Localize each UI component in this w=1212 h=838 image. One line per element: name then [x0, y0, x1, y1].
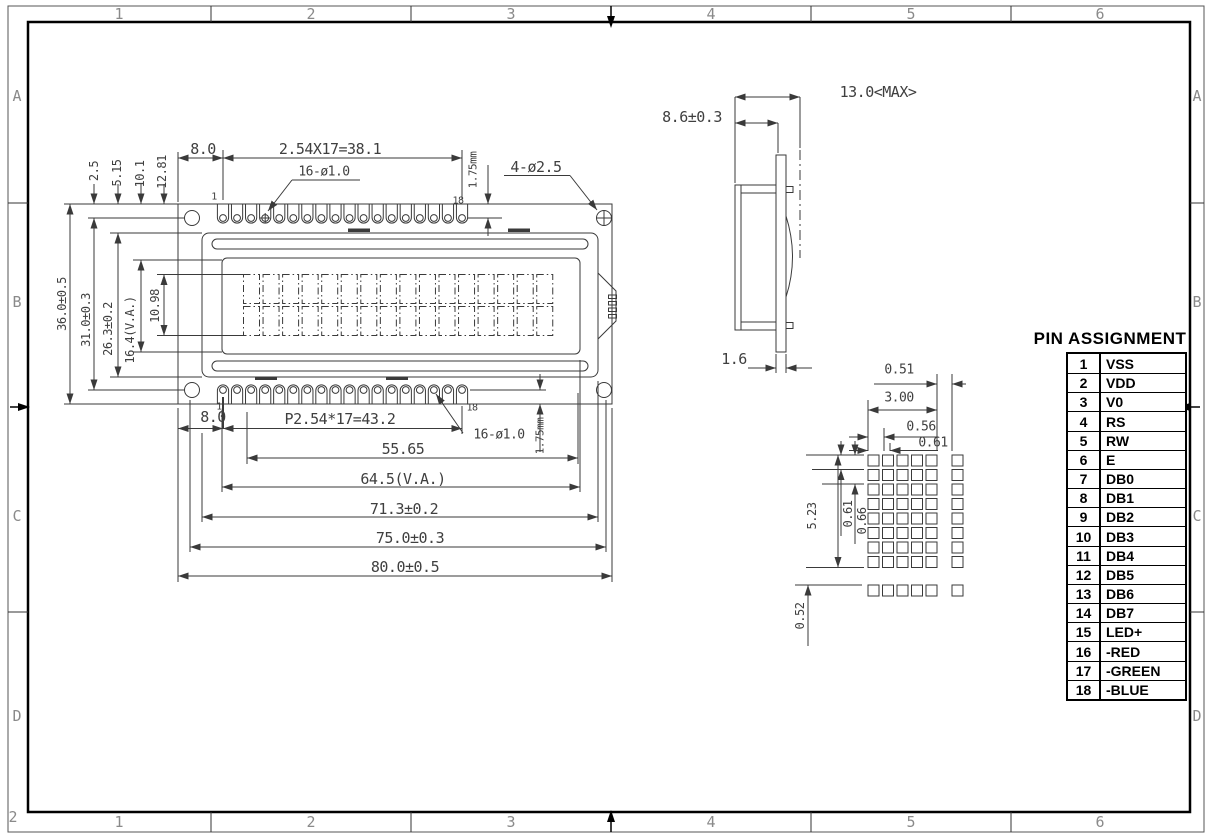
- pin-name: DB0: [1101, 471, 1185, 487]
- pin-hole: [416, 387, 423, 394]
- dot: [926, 542, 937, 553]
- dot: [868, 513, 879, 524]
- dot: [912, 557, 923, 568]
- pin-name: DB5: [1101, 567, 1185, 583]
- dot: [883, 470, 894, 481]
- pin-table-row: 16-RED: [1068, 641, 1185, 660]
- dot: [868, 585, 879, 596]
- pin-name: -GREEN: [1101, 663, 1185, 679]
- dot: [926, 455, 937, 466]
- dot: [897, 513, 908, 524]
- pin-hole: [248, 215, 255, 222]
- pin-name: V0: [1101, 394, 1185, 410]
- zone-row-b-left: B: [12, 293, 21, 311]
- zone-row-b-right: B: [1192, 293, 1201, 311]
- pin-1-label-bottom: 1: [216, 402, 222, 413]
- pin: [456, 205, 467, 224]
- dim-pin-tail-top: 1.75mm: [467, 152, 480, 189]
- dot: [952, 542, 963, 553]
- dim-width-80-0: 80.0±0.5: [371, 558, 439, 576]
- zone-col-5-top: 5: [906, 5, 915, 23]
- pin: [386, 205, 397, 224]
- pin-number: 18: [1068, 681, 1101, 699]
- zone-col-6-top: 6: [1095, 5, 1104, 23]
- pin-table-row: 9DB2: [1068, 507, 1185, 526]
- character-cell: [537, 307, 553, 336]
- pin-1-label-top: 1: [211, 192, 217, 203]
- dim-dot-col-gap: 0.51: [884, 363, 913, 378]
- zone-col-2-bottom: 2: [306, 813, 315, 831]
- character-cells: [244, 275, 553, 336]
- dim-pin-hole-top: 16-ø1.0: [298, 165, 349, 180]
- zone-col-4-bottom: 4: [706, 813, 715, 831]
- dot-matrix-detail: [795, 374, 966, 646]
- character-cell: [341, 307, 357, 336]
- dot: [912, 528, 923, 539]
- pin: [274, 205, 285, 224]
- pin-number: 14: [1068, 604, 1101, 622]
- pin-number: 13: [1068, 585, 1101, 603]
- pin: [316, 205, 327, 224]
- pin-hole: [304, 215, 311, 222]
- pin-table-row: 12DB5: [1068, 565, 1185, 584]
- dot: [912, 499, 923, 510]
- character-cell: [302, 307, 318, 336]
- pin-number: 4: [1068, 412, 1101, 430]
- dot: [926, 470, 937, 481]
- character-cell: [459, 307, 475, 336]
- pin-hole: [374, 215, 381, 222]
- pin-hole: [431, 387, 438, 394]
- dot: [926, 484, 937, 495]
- character-cell: [419, 307, 435, 336]
- dot: [897, 528, 908, 539]
- dot: [883, 513, 894, 524]
- character-cell: [517, 307, 533, 336]
- pin: [330, 385, 341, 404]
- pin-hole: [388, 215, 395, 222]
- dot: [926, 585, 937, 596]
- bezel-tabs: [255, 229, 530, 381]
- pin-number: 10: [1068, 527, 1101, 545]
- pin-hole: [346, 215, 353, 222]
- pin-table-row: 1VSS: [1068, 354, 1185, 373]
- pin: [442, 205, 453, 224]
- character-cell: [263, 307, 279, 336]
- pin: [302, 205, 313, 224]
- dim-pin-tail-bottom: 1.75mm: [534, 418, 547, 455]
- pin-name: -BLUE: [1101, 682, 1185, 698]
- dim-dot-w2: 0.61: [918, 436, 947, 451]
- dot: [897, 499, 908, 510]
- pin: [316, 385, 327, 404]
- pin-name: RS: [1101, 414, 1185, 430]
- dot: [868, 499, 879, 510]
- pin-name: DB6: [1101, 586, 1185, 602]
- pin-hole: [431, 215, 438, 222]
- pin-table-row: 14DB7: [1068, 603, 1185, 622]
- dot: [883, 542, 894, 553]
- pin: [414, 385, 425, 404]
- pin-table-row: 5RW: [1068, 431, 1185, 450]
- pin: [400, 205, 411, 224]
- pin-hole: [248, 387, 255, 394]
- character-cell: [439, 275, 455, 304]
- pin-name: DB4: [1101, 548, 1185, 564]
- dot-grid: [868, 455, 963, 596]
- pin: [246, 385, 257, 404]
- zone-col-4-top: 4: [706, 5, 715, 23]
- dot: [868, 484, 879, 495]
- pin-18-label-top: 18: [452, 196, 463, 207]
- pin: [372, 385, 383, 404]
- dot: [897, 557, 908, 568]
- character-cell: [478, 307, 494, 336]
- corner-mark: 2: [8, 808, 17, 826]
- character-cell: [322, 307, 338, 336]
- pin-hole: [360, 387, 367, 394]
- pin: [414, 205, 425, 224]
- zone-col-1-bottom: 1: [114, 813, 123, 831]
- dot: [912, 455, 923, 466]
- dim-edge-offset-top: 8.0: [190, 140, 216, 158]
- dot: [897, 470, 908, 481]
- dim-dot-w1: 0.56: [906, 420, 935, 435]
- pin: [386, 385, 397, 404]
- character-cell: [244, 307, 260, 336]
- dot: [897, 484, 908, 495]
- pin: [442, 385, 453, 404]
- dim-pin-hole-bottom: 16-ø1.0: [473, 428, 524, 443]
- character-cell: [517, 275, 533, 304]
- pin-table-row: 10DB3: [1068, 526, 1185, 545]
- character-cell: [283, 307, 299, 336]
- zone-col-6-bottom: 6: [1095, 813, 1104, 831]
- pin-hole: [402, 387, 409, 394]
- pin-assignment-table: 1VSS2VDD3V04RS5RW6E7DB08DB19DB210DB311DB…: [1066, 352, 1187, 701]
- character-cell: [302, 275, 318, 304]
- pin: [231, 205, 242, 224]
- dot: [883, 585, 894, 596]
- character-cell: [498, 307, 514, 336]
- pin-name: VDD: [1101, 375, 1185, 391]
- zone-row-d-left: D: [12, 707, 21, 725]
- dot: [912, 585, 923, 596]
- character-cell: [419, 275, 435, 304]
- pin-number: 9: [1068, 508, 1101, 526]
- dot: [897, 585, 908, 596]
- dim-pin-pitch-bottom: P2.54*17=43.2: [285, 410, 396, 428]
- dot: [952, 455, 963, 466]
- pin-name: DB7: [1101, 605, 1185, 621]
- dot: [868, 542, 879, 553]
- pin-name: LED+: [1101, 624, 1185, 640]
- dim-char-height: 5.23: [805, 503, 819, 530]
- pin-hole: [388, 387, 395, 394]
- pin-hole: [402, 215, 409, 222]
- dot: [897, 455, 908, 466]
- pin-number: 17: [1068, 662, 1101, 680]
- pin-row-top: [217, 205, 467, 224]
- dim-width-75-0: 75.0±0.3: [376, 529, 444, 547]
- dim-dot-h2: 0.66: [855, 508, 869, 535]
- pin-hole: [304, 387, 311, 394]
- pin-table-row: 17-GREEN: [1068, 661, 1185, 680]
- dot: [912, 484, 923, 495]
- dim-char-width: 3.00: [884, 391, 913, 406]
- dot: [952, 484, 963, 495]
- character-cell: [380, 307, 396, 336]
- pin-hole: [318, 215, 325, 222]
- dim-height-10-1: 10.1: [133, 161, 147, 188]
- pin: [428, 205, 439, 224]
- dot: [883, 484, 894, 495]
- dot: [926, 499, 937, 510]
- pin-hole: [262, 387, 269, 394]
- dot: [883, 455, 894, 466]
- character-cell: [478, 275, 494, 304]
- pin-table-row: 13DB6: [1068, 584, 1185, 603]
- pin-name: VSS: [1101, 356, 1185, 372]
- character-cell: [283, 275, 299, 304]
- pin-table-row: 8DB1: [1068, 488, 1185, 507]
- pin-number: 3: [1068, 393, 1101, 411]
- character-cell: [361, 307, 377, 336]
- pin-table-row: 11DB4: [1068, 546, 1185, 565]
- pin-number: 8: [1068, 489, 1101, 507]
- pin-table-title: PIN ASSIGNMENT: [1034, 329, 1187, 349]
- character-cell: [400, 275, 416, 304]
- dim-height-2-5: 2.5: [87, 161, 101, 181]
- dot: [883, 557, 894, 568]
- pin: [428, 385, 439, 404]
- pin-number: 1: [1068, 354, 1101, 373]
- dot: [952, 470, 963, 481]
- pin-table-row: 2VDD: [1068, 373, 1185, 392]
- character-cell: [341, 275, 357, 304]
- pin-18-label-bottom: 18: [466, 403, 477, 414]
- pin-hole: [374, 387, 381, 394]
- dim-height-12-81: 12.81: [155, 155, 169, 189]
- dim-depth-max: 13.0<MAX>: [840, 83, 917, 101]
- dot: [952, 557, 963, 568]
- dot: [897, 542, 908, 553]
- pin-hole: [276, 215, 283, 222]
- pin-hole: [332, 387, 339, 394]
- pin: [344, 205, 355, 224]
- pin-table-row: 15LED+: [1068, 622, 1185, 641]
- pin: [372, 205, 383, 224]
- pin-number: 6: [1068, 451, 1101, 469]
- pin-hole: [346, 387, 353, 394]
- pin: [358, 205, 369, 224]
- zone-col-5-bottom: 5: [906, 813, 915, 831]
- dot: [952, 528, 963, 539]
- zebra-connector: [598, 273, 617, 339]
- dim-height-26-3: 26.3±0.2: [101, 302, 115, 356]
- character-cell: [244, 275, 260, 304]
- zone-col-3-top: 3: [506, 5, 515, 23]
- pin-hole: [234, 215, 241, 222]
- dim-mount-hole: 4-ø2.5: [510, 158, 561, 176]
- pin-hole: [445, 387, 452, 394]
- pin-table-row: 4RS: [1068, 411, 1185, 430]
- pin: [260, 385, 271, 404]
- character-cell: [537, 275, 553, 304]
- dot: [952, 585, 963, 596]
- dim-width-55-65: 55.65: [382, 440, 425, 458]
- zone-row-a-left: A: [12, 87, 21, 105]
- front-view-dimensions: [64, 150, 612, 582]
- drawing-sheet: 1 2 3 4 5 6 1 2 3 4 5 6 A B C D A B C D …: [0, 0, 1212, 838]
- pin-hole: [416, 215, 423, 222]
- front-view: [178, 204, 617, 404]
- pin-hole: [360, 215, 367, 222]
- pin-hole: [318, 387, 325, 394]
- pin-number: 16: [1068, 642, 1101, 660]
- pin-table-row: 3V0: [1068, 392, 1185, 411]
- character-cell: [459, 275, 475, 304]
- pin: [330, 205, 341, 224]
- side-view: [735, 97, 812, 373]
- pin-number: 15: [1068, 623, 1101, 641]
- pin-hole: [459, 387, 466, 394]
- pin: [246, 205, 257, 224]
- pin-hole: [459, 215, 466, 222]
- character-cell: [400, 307, 416, 336]
- dim-width-64-5-va: 64.5(V.A.): [360, 470, 445, 488]
- pin-hole: [445, 215, 452, 222]
- pin-hole: [234, 387, 241, 394]
- dim-row-gap: 0.52: [793, 603, 807, 630]
- zone-row-c-left: C: [12, 507, 21, 525]
- character-cell: [263, 275, 279, 304]
- pin-table-row: 6E: [1068, 450, 1185, 469]
- pin-name: RW: [1101, 433, 1185, 449]
- pin: [288, 385, 299, 404]
- dim-height-5-15: 5.15: [110, 160, 124, 187]
- pin: [217, 205, 228, 224]
- pin: [456, 385, 467, 404]
- pin-name: DB2: [1101, 509, 1185, 525]
- dot: [883, 528, 894, 539]
- dim-pin-pitch-top: 2.54X17=38.1: [279, 140, 381, 158]
- pin-hole: [290, 215, 297, 222]
- pin-hole: [332, 215, 339, 222]
- dot: [926, 528, 937, 539]
- character-cell: [439, 307, 455, 336]
- pin-number: 2: [1068, 374, 1101, 392]
- character-cell: [361, 275, 377, 304]
- dot: [926, 513, 937, 524]
- dot: [926, 557, 937, 568]
- pin-name: DB3: [1101, 529, 1185, 545]
- zone-col-3-bottom: 3: [506, 813, 515, 831]
- character-cell: [322, 275, 338, 304]
- dim-pcb-to-front: 8.6±0.3: [662, 108, 722, 126]
- zone-col-2-top: 2: [306, 5, 315, 23]
- dot: [868, 528, 879, 539]
- pin: [344, 385, 355, 404]
- pin-hole: [290, 387, 297, 394]
- dot: [912, 470, 923, 481]
- pin-number: 5: [1068, 432, 1101, 450]
- zone-row-c-right: C: [1192, 507, 1201, 525]
- pin-name: E: [1101, 452, 1185, 468]
- pin-hole: [220, 387, 227, 394]
- zone-row-d-right: D: [1192, 707, 1201, 725]
- zone-row-a-right: A: [1192, 87, 1201, 105]
- pin: [288, 205, 299, 224]
- dot: [912, 542, 923, 553]
- dot: [912, 513, 923, 524]
- pin-number: 11: [1068, 547, 1101, 565]
- pin: [358, 385, 369, 404]
- pin-name: -RED: [1101, 644, 1185, 660]
- dim-pcb-thickness: 1.6: [721, 350, 747, 368]
- dim-width-71-3: 71.3±0.2: [370, 500, 438, 518]
- pin-table-row: 7DB0: [1068, 469, 1185, 488]
- dim-height-31-0: 31.0±0.3: [79, 293, 93, 347]
- dim-height-36-0: 36.0±0.5: [55, 277, 69, 331]
- dot: [868, 557, 879, 568]
- pin-row-bottom: [217, 385, 467, 404]
- dot: [883, 499, 894, 510]
- dim-dot-h1: 0.61: [841, 501, 855, 528]
- pin-hole: [220, 215, 227, 222]
- character-cell: [498, 275, 514, 304]
- pin: [231, 385, 242, 404]
- dot: [868, 470, 879, 481]
- dot: [868, 455, 879, 466]
- dim-height-16-4-va: 16.4(V.A.): [123, 296, 137, 363]
- pin: [400, 385, 411, 404]
- character-cell: [380, 275, 396, 304]
- pin-hole: [276, 387, 283, 394]
- drawing-linework: [0, 0, 1212, 838]
- dot: [952, 499, 963, 510]
- pin: [302, 385, 313, 404]
- pin-name: DB1: [1101, 490, 1185, 506]
- pin-number: 7: [1068, 470, 1101, 488]
- pin-number: 12: [1068, 566, 1101, 584]
- dim-height-10-98: 10.98: [148, 289, 162, 323]
- pin-table-row: 18-BLUE: [1068, 680, 1185, 699]
- dot: [952, 513, 963, 524]
- zone-col-1-top: 1: [114, 5, 123, 23]
- pin: [274, 385, 285, 404]
